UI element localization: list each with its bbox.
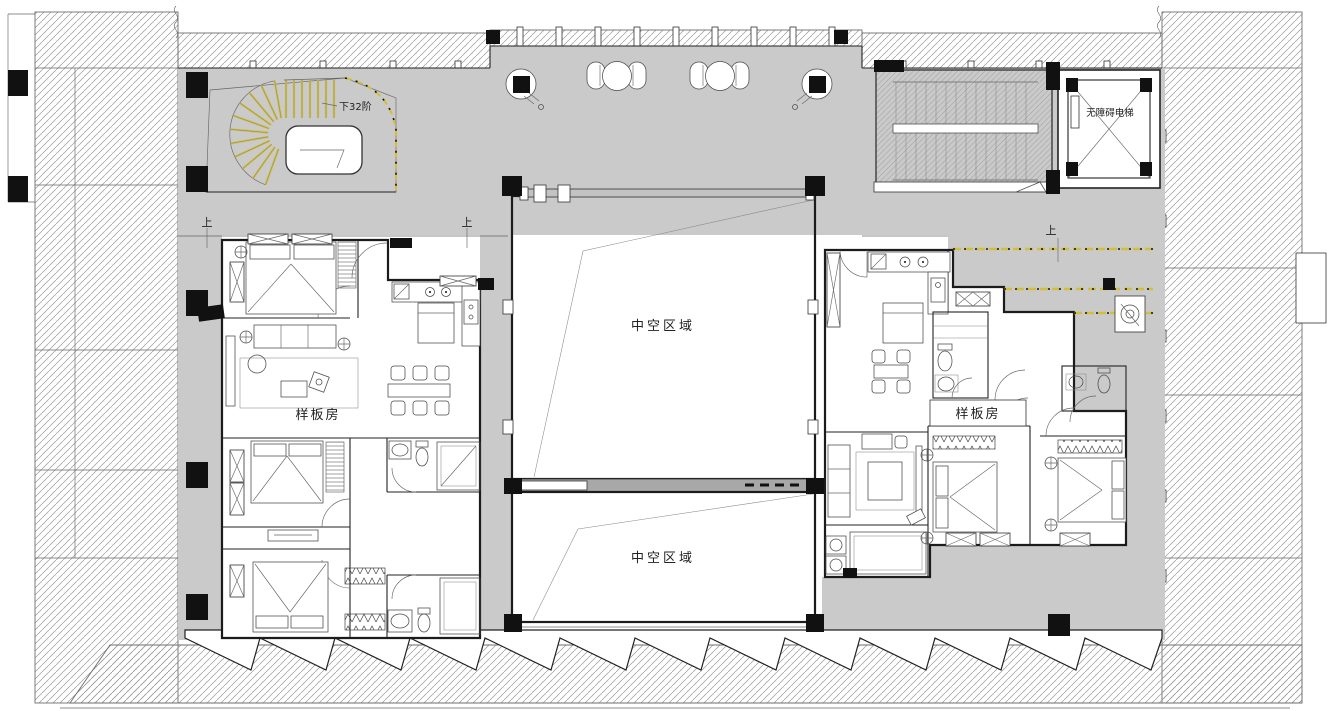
cafe-table-2 [690,62,749,91]
atrium-lower-label: 中空区域 [631,551,695,566]
up-marker-left: 上 [202,216,213,229]
hall-closet-1 [345,568,385,584]
floor-plan-drawing: 下32阶 无障碍 [0,0,1336,711]
model-room-right-label: 样板房 [955,406,1000,422]
elevator-door [1071,96,1079,128]
atrium-upper-label: 中空区域 [631,319,695,334]
floor-plan-canvas: 下32阶 无障碍 [0,0,1336,711]
stair-shaft [874,70,1052,192]
up-marker-right: 上 [1046,224,1057,237]
ceiling-fixture [235,246,247,258]
dining-left [388,366,450,415]
elevator-label: 无障碍电梯 [1086,107,1134,119]
left-apartment: 样板房 [197,234,480,638]
corridor-art-box [1115,296,1145,332]
bedroom-3 [253,562,328,632]
hall-closet-2 [345,614,385,630]
stair-note-label: 下32阶 [339,100,372,113]
utility-right [826,532,926,574]
cafe-table-1 [587,62,646,91]
accessible-elevator: 无障碍电梯 [1058,70,1160,188]
up-marker-center: 上 [462,216,473,229]
atrium-divider [512,479,815,492]
right-wall-niche [1296,253,1326,323]
model-room-left-label: 样板房 [295,407,340,423]
